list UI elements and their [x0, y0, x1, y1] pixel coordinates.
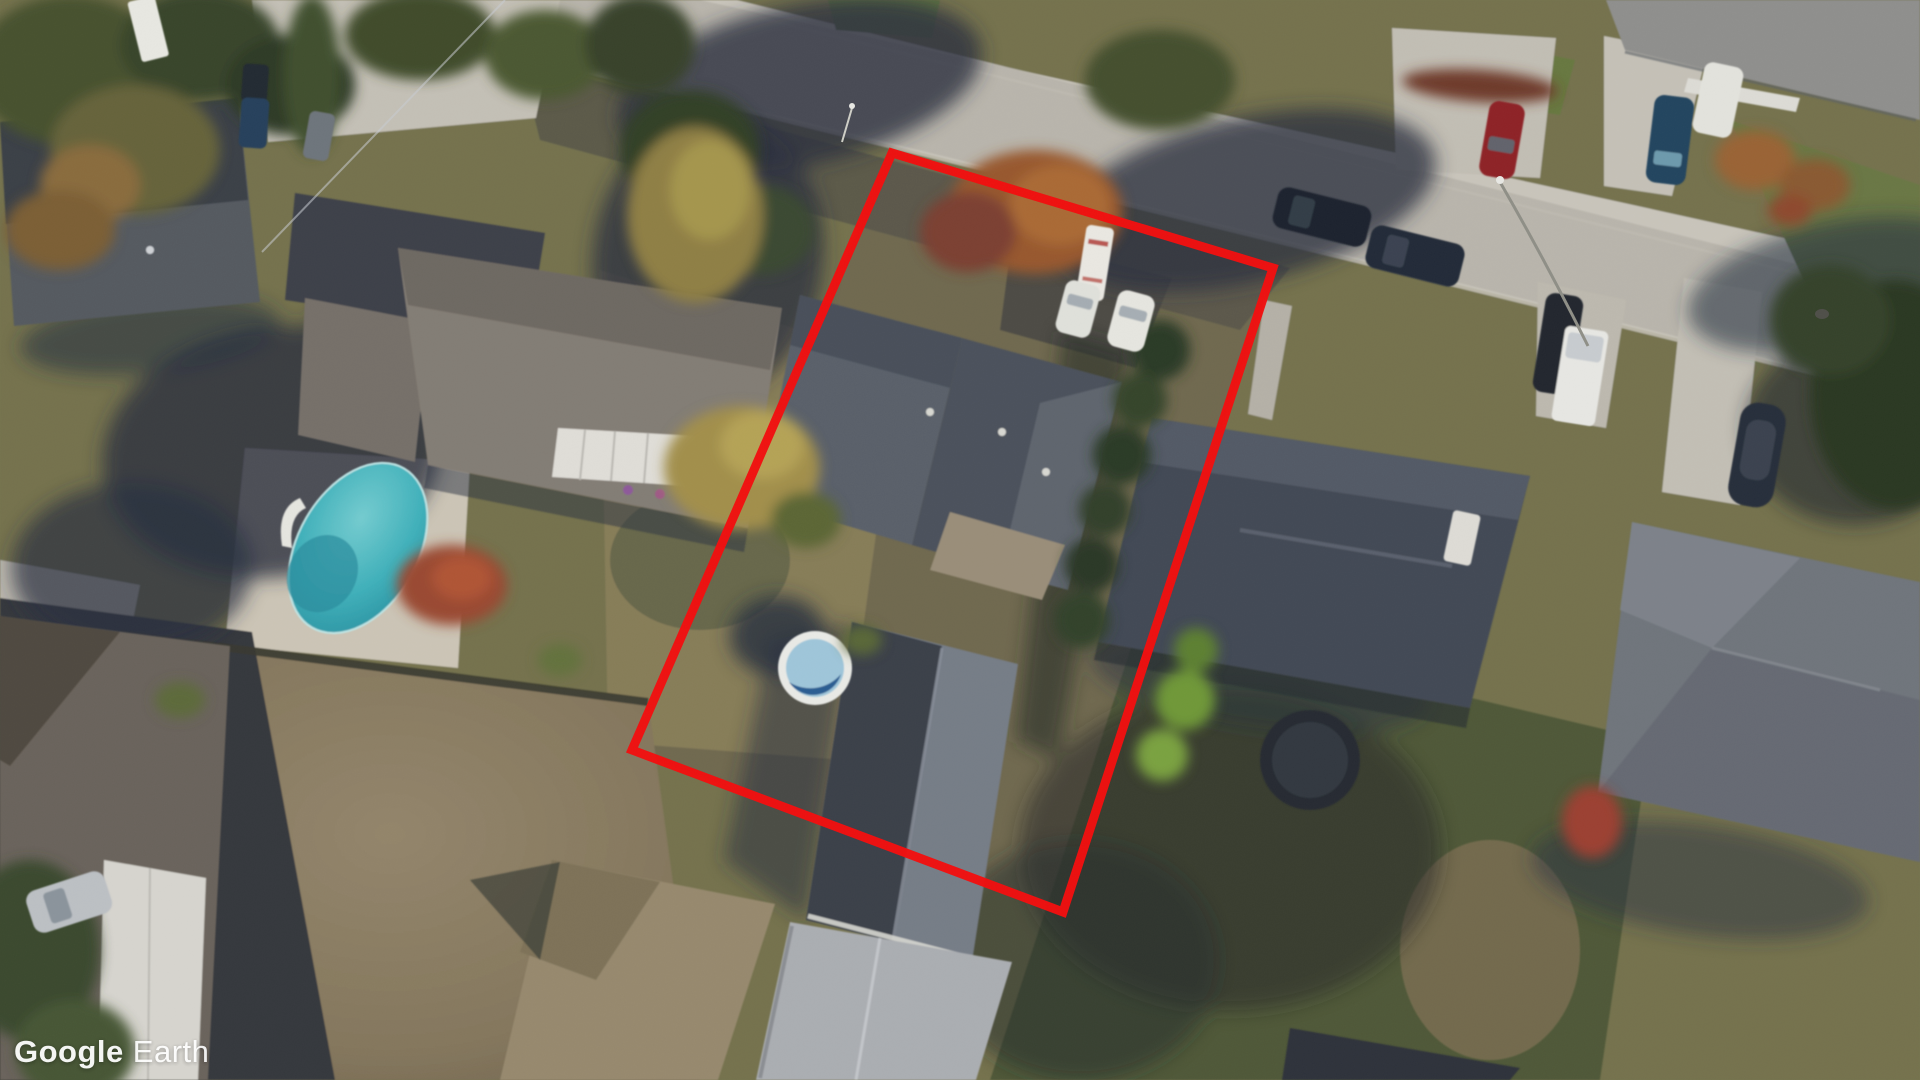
watermark-brand: Google — [14, 1034, 124, 1069]
aerial-imagery-canvas[interactable] — [0, 0, 1920, 1080]
google-earth-watermark: GoogleEarth — [14, 1034, 209, 1070]
photo-grain — [0, 0, 1920, 1080]
watermark-product: Earth — [133, 1034, 210, 1069]
google-earth-viewport: GoogleEarth — [0, 0, 1920, 1080]
